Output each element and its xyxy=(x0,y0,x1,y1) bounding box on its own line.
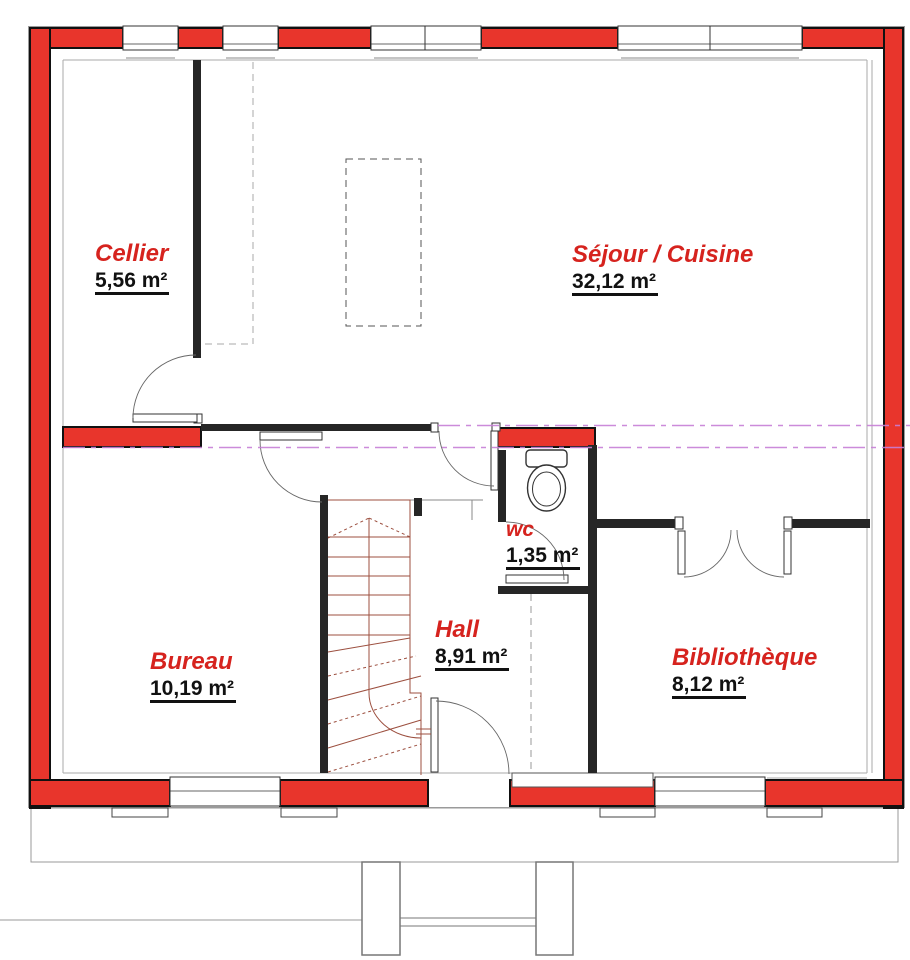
window xyxy=(618,26,802,58)
winder-treads xyxy=(328,638,421,772)
double-door-bibliotheque xyxy=(678,530,791,577)
front-door xyxy=(431,698,509,774)
window xyxy=(170,777,280,806)
room-area: 32,12 m² xyxy=(572,270,658,296)
window xyxy=(223,26,278,58)
room-label-wc: wc 1,35 m² xyxy=(506,519,580,570)
room-name: Bureau xyxy=(150,649,236,674)
room-area: 5,56 m² xyxy=(95,269,169,295)
stair-walk-line xyxy=(369,693,421,738)
room-label-bibliotheque: Bibliothèque 8,12 m² xyxy=(672,645,817,699)
window xyxy=(371,26,481,58)
floor-plan-drawing xyxy=(0,0,910,960)
room-label-hall: Hall 8,91 m² xyxy=(435,617,509,671)
room-area: 8,91 m² xyxy=(435,645,509,671)
floor-plan: Cellier 5,56 m² Séjour / Cuisine 32,12 m… xyxy=(0,0,910,960)
window xyxy=(123,26,178,58)
room-area: 8,12 m² xyxy=(672,673,746,699)
room-name: Cellier xyxy=(95,241,169,266)
porch-steps xyxy=(362,862,573,955)
staircase xyxy=(328,500,431,775)
door-cellier xyxy=(133,355,197,422)
toilet-icon xyxy=(526,450,567,511)
room-label-sejour-cuisine: Séjour / Cuisine 32,12 m² xyxy=(572,242,753,296)
shutters xyxy=(112,808,822,817)
sill-strip xyxy=(512,773,653,787)
room-name: Bibliothèque xyxy=(672,645,817,670)
room-label-cellier: Cellier 5,56 m² xyxy=(95,241,169,295)
terrace-outline xyxy=(0,808,898,920)
door-bureau xyxy=(260,432,322,502)
kitchen-island-outline xyxy=(346,159,421,326)
room-name: Séjour / Cuisine xyxy=(572,242,753,267)
room-label-bureau: Bureau 10,19 m² xyxy=(150,649,236,703)
room-name: wc xyxy=(506,519,580,541)
room-area: 10,19 m² xyxy=(150,677,236,703)
room-area: 1,35 m² xyxy=(506,544,580,570)
door-hall xyxy=(439,431,498,490)
window xyxy=(655,777,765,806)
room-name: Hall xyxy=(435,617,509,642)
doors xyxy=(133,355,791,774)
